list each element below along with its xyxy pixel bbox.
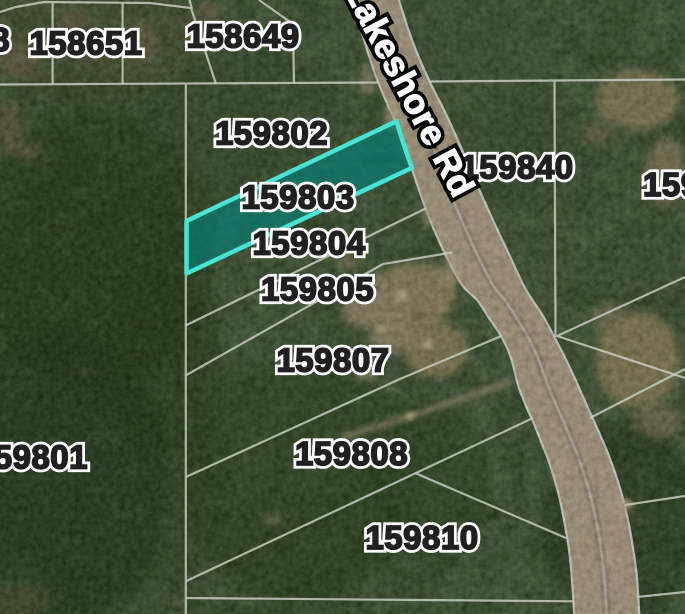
svg-text:159808: 159808 [295, 435, 408, 472]
svg-text:1598: 1598 [643, 166, 685, 203]
svg-text:158651: 158651 [29, 25, 142, 62]
svg-text:159801: 159801 [0, 439, 88, 476]
svg-text:158649: 158649 [186, 18, 299, 55]
svg-text:159803: 159803 [241, 179, 354, 216]
svg-text:159804: 159804 [252, 225, 365, 262]
svg-text:159807: 159807 [276, 342, 389, 379]
svg-text:159802: 159802 [215, 115, 328, 152]
svg-text:159810: 159810 [365, 519, 478, 556]
svg-text:159805: 159805 [261, 271, 374, 308]
svg-text:8: 8 [0, 21, 10, 58]
